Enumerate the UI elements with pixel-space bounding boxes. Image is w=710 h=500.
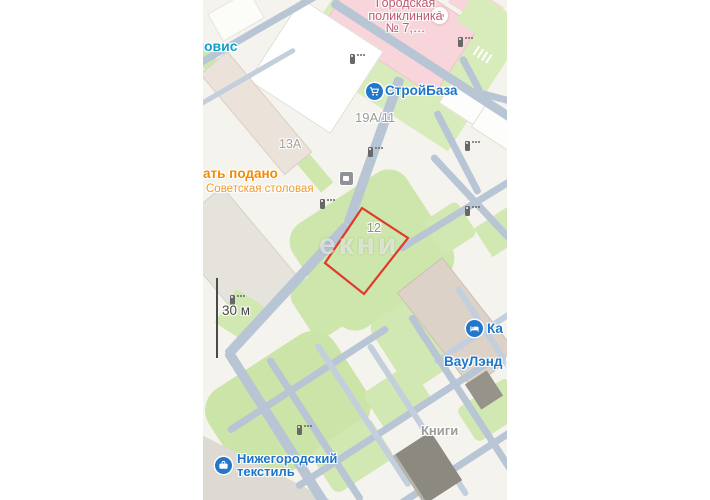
road-camera-icon	[339, 171, 354, 186]
traffic-light-icon	[465, 206, 470, 216]
watermark: екни	[319, 228, 399, 262]
scale-bar	[216, 278, 218, 358]
service-label-partial[interactable]: овис	[204, 38, 238, 54]
canteen-label[interactable]: ать подано	[203, 166, 278, 181]
traffic-light-icon	[297, 425, 302, 435]
clinic-label[interactable]: Городская поликлиника № 7,…	[333, 0, 478, 35]
briefcase-icon[interactable]	[215, 457, 232, 474]
scale-label: 30 м	[222, 303, 250, 318]
canteen-sublabel[interactable]: Советская столовая	[206, 183, 314, 195]
textile-label-line2: текстиль	[237, 465, 347, 478]
traffic-light-icon	[368, 147, 373, 157]
stroybaza-label[interactable]: СтройБаза	[385, 83, 458, 98]
building-19a11-label: 19А/11	[355, 110, 395, 125]
traffic-light-icon	[350, 54, 355, 64]
wowland-label[interactable]: ВауЛэнд (	[444, 354, 507, 369]
screenshot: Городская поликлиника № 7,… овис СтройБа…	[0, 0, 710, 500]
shopping-cart-icon[interactable]	[366, 83, 383, 100]
textile-label[interactable]: Нижегородский текстиль	[237, 452, 347, 478]
building-13a-label: 13А	[279, 137, 301, 151]
bed-icon[interactable]	[466, 320, 483, 337]
hotel-label-partial[interactable]: Ка	[487, 321, 503, 336]
traffic-light-icon	[320, 199, 325, 209]
clinic-label-line3: № 7,…	[333, 22, 478, 35]
books-label: Книги	[421, 423, 458, 438]
traffic-light-icon	[465, 141, 470, 151]
traffic-light-icon	[458, 37, 463, 47]
map-canvas[interactable]: Городская поликлиника № 7,… овис СтройБа…	[203, 0, 507, 500]
